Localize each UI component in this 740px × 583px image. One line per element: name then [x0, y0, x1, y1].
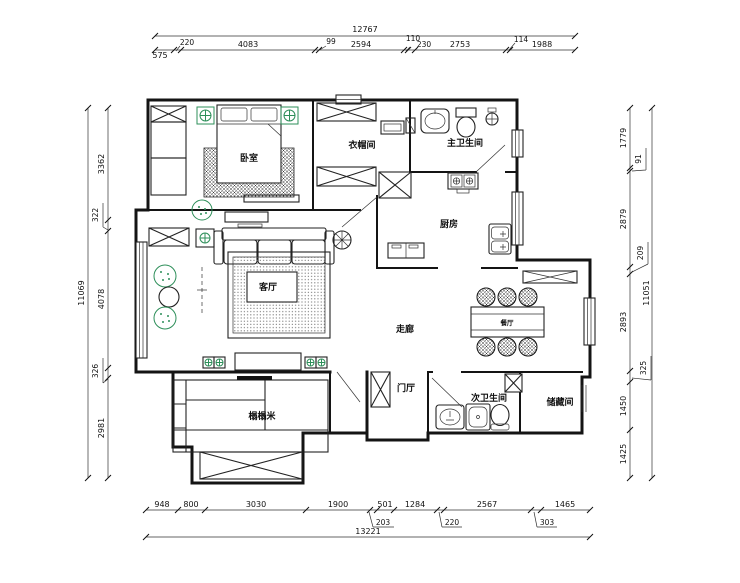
dining-right-window [584, 298, 595, 345]
pillow [251, 108, 277, 121]
svg-text:800: 800 [183, 500, 198, 509]
svg-text:220: 220 [445, 518, 460, 527]
svg-text:3362: 3362 [97, 154, 106, 174]
bath-right-window [512, 130, 523, 157]
svg-text:2893: 2893 [619, 312, 628, 332]
svg-text:325: 325 [639, 361, 648, 376]
svg-text:948: 948 [154, 500, 169, 509]
dim-left-total: 11069 [77, 280, 86, 305]
dim-bottom-total: 13221 [355, 527, 380, 536]
floor-plan-page: 卧室 衣帽间 主卫生间 [0, 0, 740, 583]
dining-window-seat [523, 271, 577, 283]
rug [228, 252, 330, 338]
svg-text:114: 114 [514, 35, 529, 44]
pillow [221, 108, 247, 121]
dining: 餐厅 [471, 288, 544, 356]
dim-right-total: 11051 [642, 280, 651, 305]
svg-text:220: 220 [180, 38, 195, 47]
svg-text:2879: 2879 [619, 209, 628, 229]
living-left-window [136, 242, 147, 358]
canvas-background [0, 0, 740, 583]
chairs-top [477, 288, 537, 306]
svg-text:1779: 1779 [619, 128, 628, 148]
svg-text:3030: 3030 [246, 500, 266, 509]
svg-text:1988: 1988 [532, 40, 552, 49]
svg-text:2567: 2567 [477, 500, 497, 509]
round-table [159, 287, 179, 307]
svg-text:1284: 1284 [405, 500, 425, 509]
svg-text:1900: 1900 [328, 500, 348, 509]
svg-text:2594: 2594 [351, 40, 371, 49]
room-label-corridor: 走廊 [395, 323, 414, 335]
room-label-storage: 储藏间 [546, 396, 573, 408]
room-label-dining: 餐厅 [500, 318, 515, 327]
svg-text:4083: 4083 [238, 40, 258, 49]
svg-text:303: 303 [540, 518, 555, 527]
svg-text:2981: 2981 [97, 418, 106, 438]
svg-text:91: 91 [634, 154, 643, 164]
room-label-cloakroom: 衣帽间 [348, 139, 375, 151]
svg-text:326: 326 [91, 364, 100, 379]
room-label-living: 客厅 [258, 281, 277, 293]
room-label-tatami: 榻榻米 [247, 410, 276, 422]
svg-text:1450: 1450 [619, 396, 628, 416]
dim-top-total: 12767 [352, 25, 377, 34]
kitchen-right-window [512, 192, 523, 245]
room-label-foyer: 门厅 [397, 382, 415, 394]
svg-text:322: 322 [91, 208, 100, 223]
chairs-bottom [477, 338, 537, 356]
floor-plan-drawing: 卧室 衣帽间 主卫生间 [0, 0, 740, 583]
tatami-rail [237, 376, 272, 380]
svg-text:203: 203 [376, 518, 391, 527]
svg-text:4078: 4078 [97, 289, 106, 309]
room-label-master-bath: 主卫生间 [447, 137, 483, 149]
svg-text:2753: 2753 [450, 40, 470, 49]
room-label-kitchen: 厨房 [440, 218, 458, 230]
room-label-second-bath: 次卫生间 [471, 392, 507, 404]
svg-text:501: 501 [377, 500, 392, 509]
room-label-bedroom: 卧室 [240, 152, 258, 164]
svg-text:1465: 1465 [555, 500, 575, 509]
svg-text:230: 230 [417, 40, 432, 49]
svg-text:209: 209 [636, 246, 645, 261]
ceiling-fan [333, 231, 351, 249]
svg-text:99: 99 [326, 37, 336, 46]
svg-text:575: 575 [152, 51, 167, 60]
svg-text:1425: 1425 [619, 444, 628, 464]
